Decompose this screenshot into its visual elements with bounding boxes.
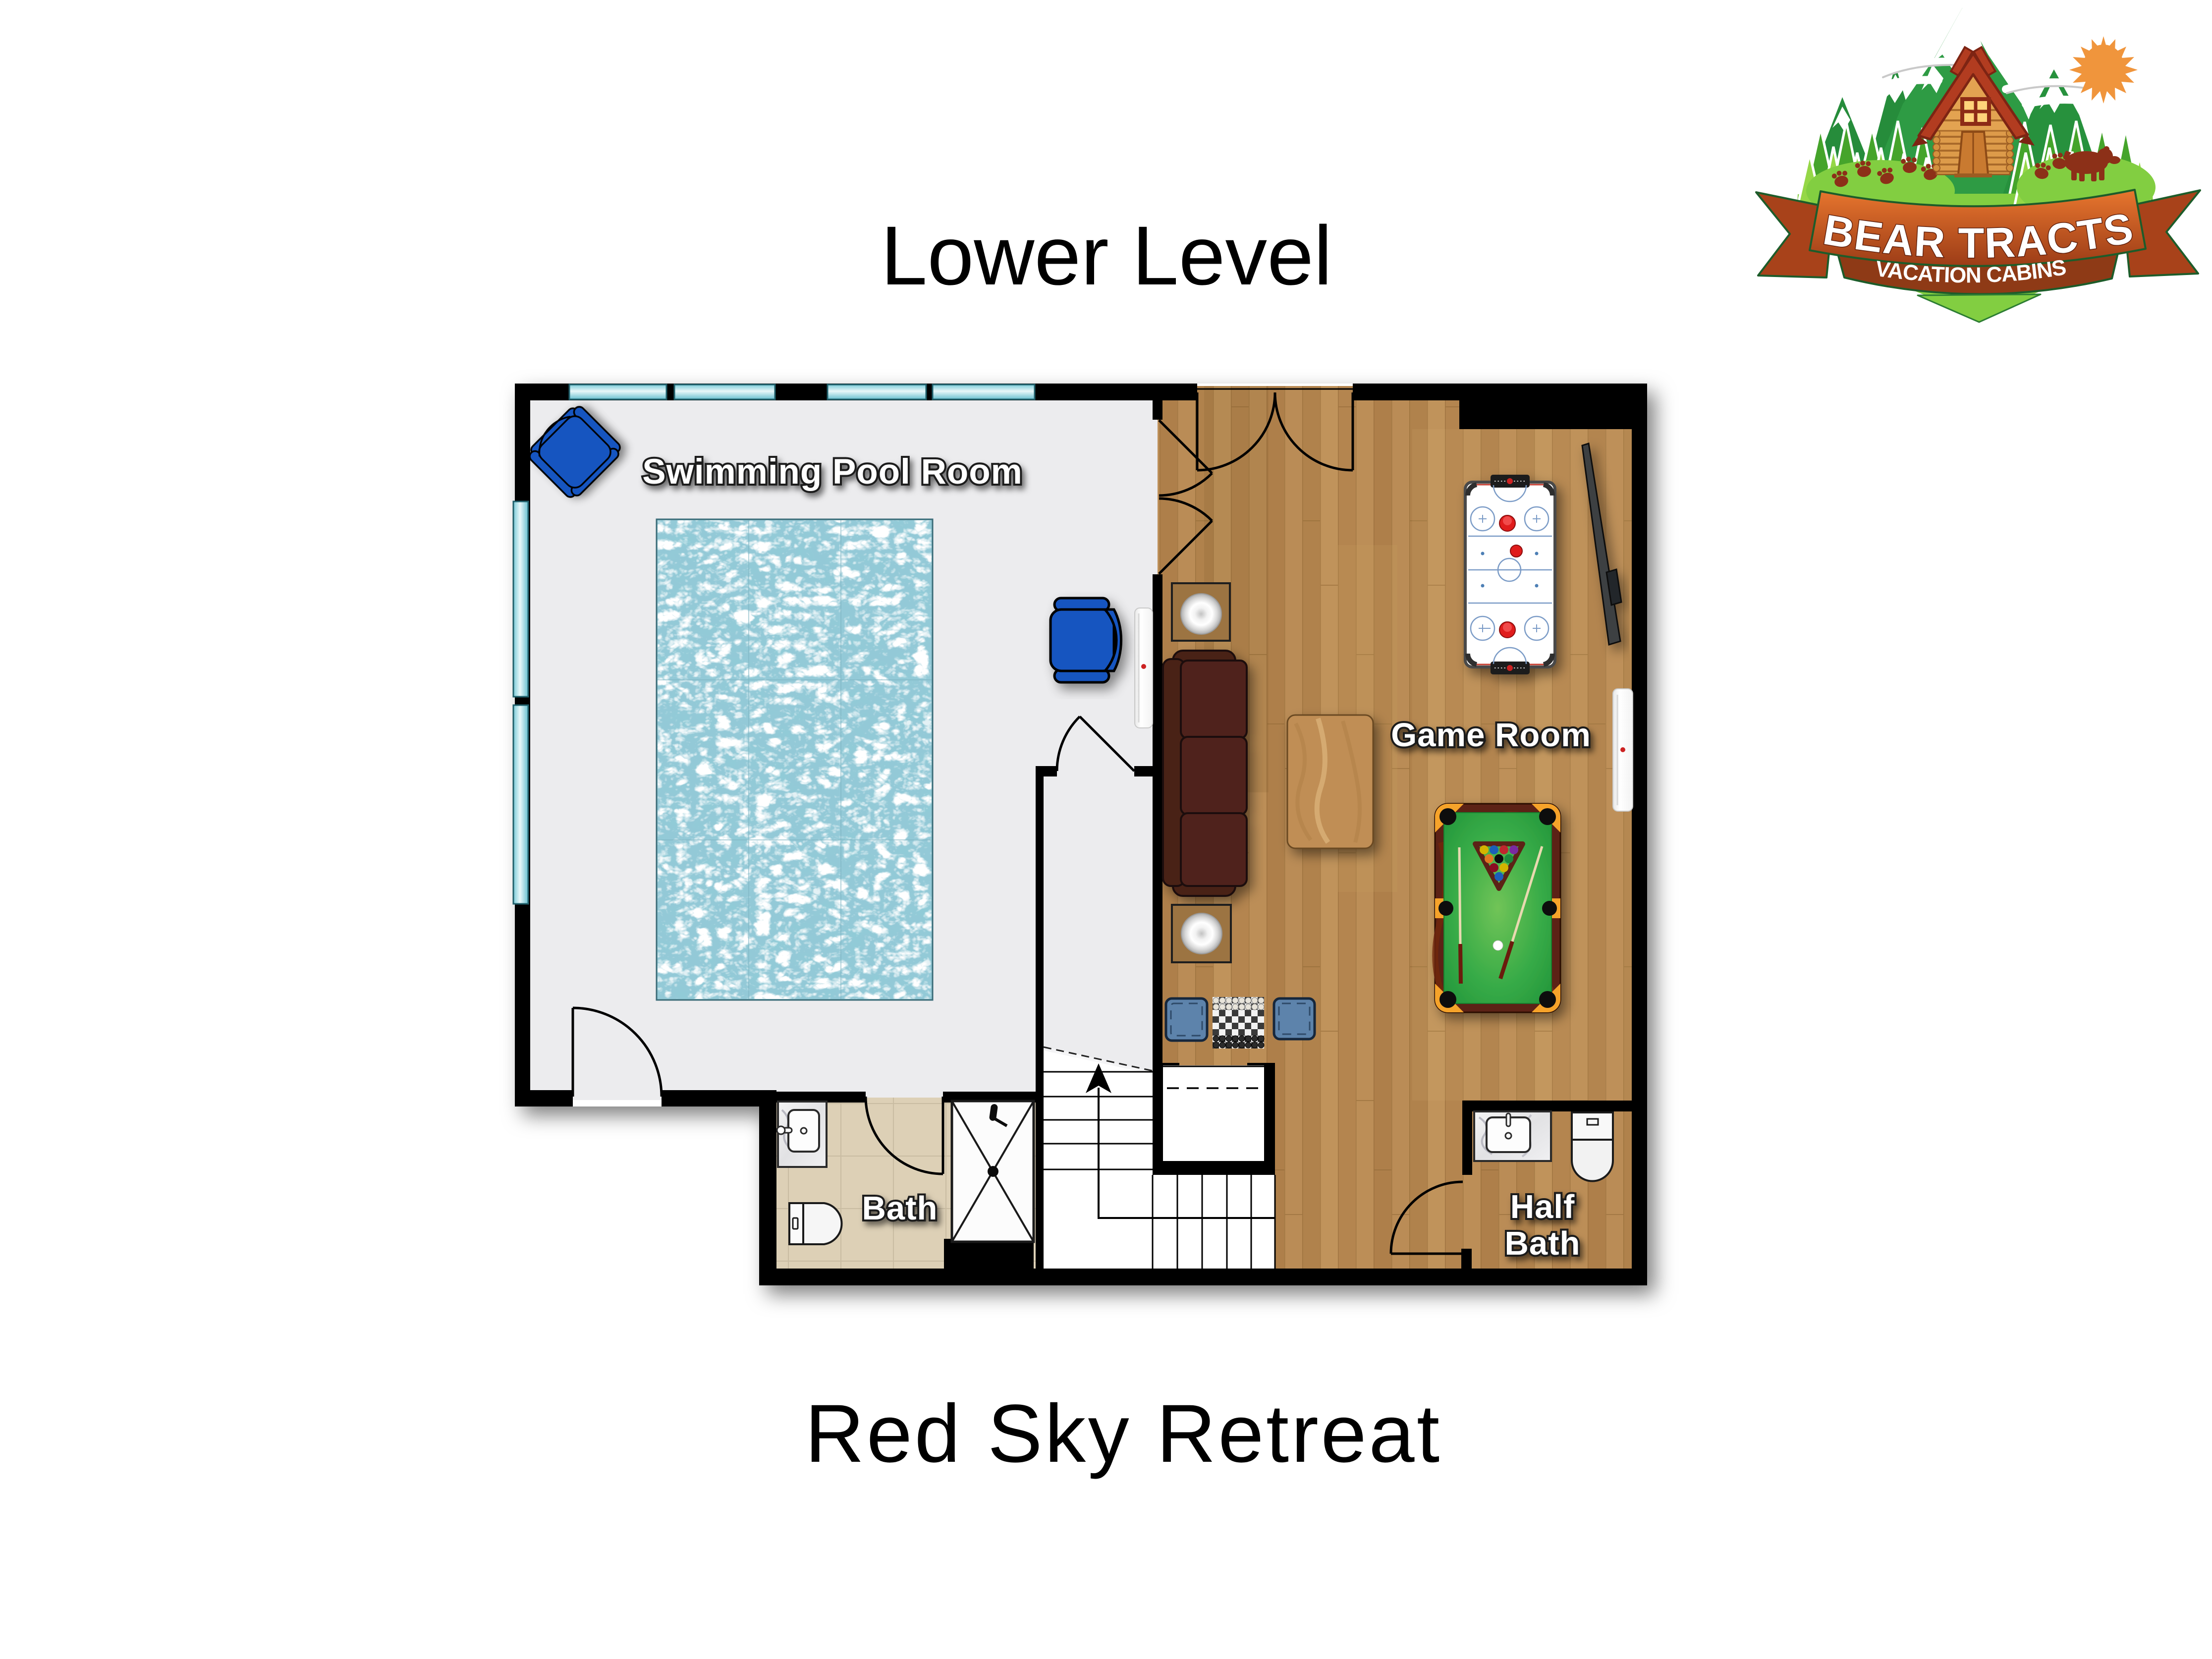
svg-text:Red Sky Retreat: Red Sky Retreat	[805, 1388, 1441, 1480]
svg-text:Game Room: Game Room	[1391, 717, 1591, 754]
svg-text:Bath: Bath	[862, 1190, 938, 1227]
svg-text:Lower Level: Lower Level	[881, 209, 1332, 302]
svg-text:Bath: Bath	[1505, 1225, 1581, 1262]
svg-text:Half: Half	[1510, 1188, 1575, 1225]
svg-text:Swimming Pool Room: Swimming Pool Room	[642, 452, 1022, 492]
